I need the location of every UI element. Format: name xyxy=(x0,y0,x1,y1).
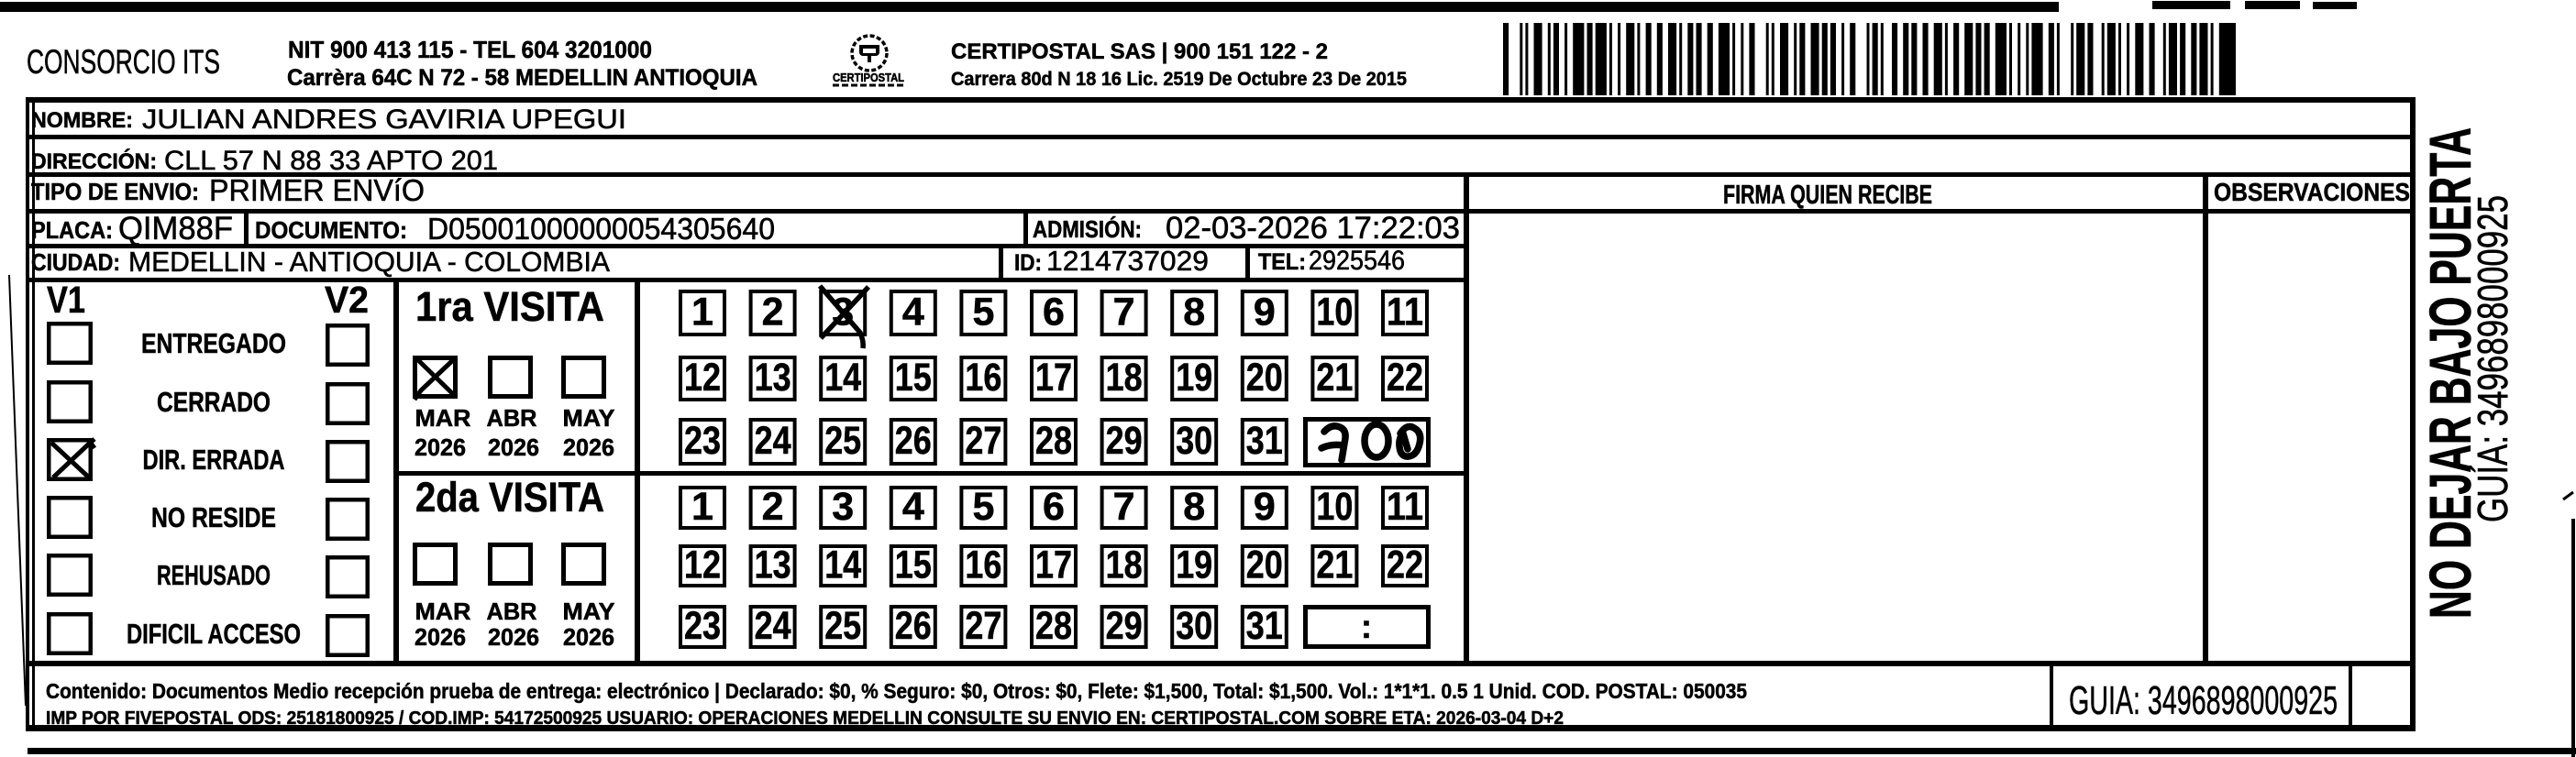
svg-text:31: 31 xyxy=(1246,419,1283,463)
svg-text:2da VISITA: 2da VISITA xyxy=(415,474,604,521)
svg-text:10: 10 xyxy=(1316,485,1353,529)
svg-text:PLACA:: PLACA: xyxy=(31,216,113,244)
svg-text:DIR. ERRADA: DIR. ERRADA xyxy=(143,444,285,476)
svg-text:Contenido: Documentos Medio re: Contenido: Documentos Medio recepción pr… xyxy=(46,679,1747,703)
svg-text:30: 30 xyxy=(1176,604,1212,648)
svg-text:2026: 2026 xyxy=(563,433,614,461)
svg-text:CERTIPOSTAL SAS | 900 151 122: CERTIPOSTAL SAS | 900 151 122 - 2 xyxy=(951,39,1328,64)
svg-text:27: 27 xyxy=(965,419,1001,463)
svg-text:TEL:: TEL: xyxy=(1258,249,1306,275)
svg-text:1214737029: 1214737029 xyxy=(1046,245,1209,277)
svg-text:1: 1 xyxy=(691,291,713,335)
svg-text:31: 31 xyxy=(1246,604,1283,648)
svg-text:7: 7 xyxy=(1113,485,1135,529)
svg-text:10: 10 xyxy=(1316,291,1353,335)
svg-text:18: 18 xyxy=(1106,543,1143,587)
svg-text:OBSERVACIONES: OBSERVACIONES xyxy=(2214,178,2410,206)
svg-text:IMP POR FIVEPOSTAL ODS: 251818: IMP POR FIVEPOSTAL ODS: 25181800925 / CO… xyxy=(46,708,1564,729)
svg-text:V2: V2 xyxy=(325,279,369,321)
svg-text:24: 24 xyxy=(755,604,791,648)
svg-text:1ra VISITA: 1ra VISITA xyxy=(415,283,604,330)
svg-text:2026: 2026 xyxy=(488,433,539,461)
svg-text:15: 15 xyxy=(895,543,932,587)
svg-text:02-03-2026 17:22:03: 02-03-2026 17:22:03 xyxy=(1166,211,1460,246)
svg-text:17: 17 xyxy=(1035,543,1072,587)
svg-text:8: 8 xyxy=(1183,485,1205,529)
svg-text:2925546: 2925546 xyxy=(1309,246,1405,276)
svg-text:24: 24 xyxy=(755,419,791,463)
svg-text:MAY: MAY xyxy=(563,404,615,432)
svg-text:CERRADO: CERRADO xyxy=(157,386,271,418)
svg-text:QIM88F: QIM88F xyxy=(118,211,233,247)
svg-text:ID:: ID: xyxy=(1014,250,1042,276)
svg-text:27: 27 xyxy=(965,604,1001,648)
svg-text:13: 13 xyxy=(755,356,791,400)
svg-text:Carrèra 64C N 72 - 58 MEDELLIN: Carrèra 64C N 72 - 58 MEDELLIN ANTIOQUIA xyxy=(287,65,757,91)
svg-text:17: 17 xyxy=(1035,356,1072,400)
svg-text:11: 11 xyxy=(1387,485,1423,529)
svg-text:2: 2 xyxy=(762,291,784,335)
svg-text:21: 21 xyxy=(1316,356,1353,400)
svg-text::: : xyxy=(1361,608,1372,645)
svg-text:2026: 2026 xyxy=(415,623,466,651)
svg-text:20: 20 xyxy=(1246,356,1283,400)
svg-text:TIPO DE ENVIO:: TIPO DE ENVIO: xyxy=(31,178,199,205)
svg-text:4: 4 xyxy=(902,291,924,335)
svg-text:30: 30 xyxy=(1176,419,1212,463)
svg-text:9: 9 xyxy=(1254,485,1276,529)
svg-text:25: 25 xyxy=(824,604,861,648)
svg-text:2026: 2026 xyxy=(563,623,614,651)
svg-text:9: 9 xyxy=(1254,291,1276,335)
svg-text:CLL 57 N 88 33 APTO 201: CLL 57 N 88 33 APTO 201 xyxy=(164,146,498,176)
svg-text:7: 7 xyxy=(1113,291,1135,335)
svg-text:NO RESIDE: NO RESIDE xyxy=(151,501,276,533)
svg-text:MAR: MAR xyxy=(415,404,471,432)
svg-text:19: 19 xyxy=(1176,356,1212,400)
svg-text:12: 12 xyxy=(684,356,721,400)
svg-text:ABR: ABR xyxy=(487,598,537,625)
svg-text:5: 5 xyxy=(972,485,994,529)
svg-text:6: 6 xyxy=(1043,291,1065,335)
svg-text:26: 26 xyxy=(895,604,932,648)
svg-text:23: 23 xyxy=(684,604,721,648)
svg-text:22: 22 xyxy=(1387,543,1423,587)
svg-text:29: 29 xyxy=(1106,604,1143,648)
svg-text:16: 16 xyxy=(965,356,1001,400)
svg-text:2026: 2026 xyxy=(488,623,539,651)
svg-text:19: 19 xyxy=(1176,543,1212,587)
svg-text:4: 4 xyxy=(902,485,924,529)
svg-text:12: 12 xyxy=(684,543,721,587)
svg-text:23: 23 xyxy=(684,419,721,463)
svg-text:28: 28 xyxy=(1035,604,1072,648)
svg-text:ENTREGADO: ENTREGADO xyxy=(141,327,286,359)
svg-text:NIT 900 413 115 - TEL 604 3201: NIT 900 413 115 - TEL 604 3201000 xyxy=(288,38,652,63)
svg-text:DIFICIL ACCESO: DIFICIL ACCESO xyxy=(127,618,301,650)
svg-text:21: 21 xyxy=(1316,543,1353,587)
svg-text:Carrera 80d N 18 16 Lic. 2519: Carrera 80d N 18 16 Lic. 2519 De Octubre… xyxy=(951,68,1407,90)
svg-text:REHUSADO: REHUSADO xyxy=(157,559,271,591)
svg-text:3: 3 xyxy=(832,485,854,529)
svg-text:ABR: ABR xyxy=(487,404,537,432)
svg-text:NOMBRE:: NOMBRE: xyxy=(31,108,133,133)
svg-text:6: 6 xyxy=(1043,485,1065,529)
svg-text:MAR: MAR xyxy=(415,598,471,625)
svg-text:CERTIPOSTAL: CERTIPOSTAL xyxy=(833,71,904,84)
svg-text:22: 22 xyxy=(1387,356,1423,400)
svg-text:FIRMA QUIEN RECIBE: FIRMA QUIEN RECIBE xyxy=(1723,181,1932,210)
svg-text:8: 8 xyxy=(1183,291,1205,335)
svg-text:ADMISIÓN:: ADMISIÓN: xyxy=(1033,215,1142,243)
svg-text:MEDELLIN - ANTIOQUIA - COLOMBI: MEDELLIN - ANTIOQUIA - COLOMBIA xyxy=(128,246,610,278)
svg-text:V1: V1 xyxy=(47,279,85,321)
svg-text:5: 5 xyxy=(972,291,994,335)
svg-text:11: 11 xyxy=(1387,291,1423,335)
svg-text:CONSORCIO ITS: CONSORCIO ITS xyxy=(27,43,220,81)
svg-text:DOCUMENTO:: DOCUMENTO: xyxy=(255,216,407,244)
svg-text:PRIMER ENVíO: PRIMER ENVíO xyxy=(209,173,425,207)
svg-text:1: 1 xyxy=(691,485,713,529)
svg-text:2: 2 xyxy=(762,485,784,529)
svg-text:26: 26 xyxy=(895,419,932,463)
svg-text:13: 13 xyxy=(755,543,791,587)
svg-text:2026: 2026 xyxy=(415,433,466,461)
svg-text:15: 15 xyxy=(895,356,932,400)
svg-text:14: 14 xyxy=(824,543,861,587)
svg-text:MAY: MAY xyxy=(563,598,615,625)
svg-text:29: 29 xyxy=(1106,419,1143,463)
svg-text:28: 28 xyxy=(1035,419,1072,463)
svg-text:D05001000000054305640: D05001000000054305640 xyxy=(427,212,775,246)
svg-text:25: 25 xyxy=(824,419,861,463)
svg-text:JULIAN ANDRES GAVIRIA UPEGUI: JULIAN ANDRES GAVIRIA UPEGUI xyxy=(142,104,626,135)
svg-text:20: 20 xyxy=(1246,543,1283,587)
svg-text:GUÍA: 3496898000925: GUÍA: 3496898000925 xyxy=(2469,195,2516,522)
svg-text:16: 16 xyxy=(965,543,1001,587)
svg-text:GUIA: 3496898000925: GUIA: 3496898000925 xyxy=(2069,678,2338,723)
svg-text:CIUDAD:: CIUDAD: xyxy=(31,248,120,276)
svg-text:14: 14 xyxy=(824,356,861,400)
svg-text:18: 18 xyxy=(1106,356,1143,400)
svg-text:DIRECCIÓN:: DIRECCIÓN: xyxy=(31,148,157,174)
